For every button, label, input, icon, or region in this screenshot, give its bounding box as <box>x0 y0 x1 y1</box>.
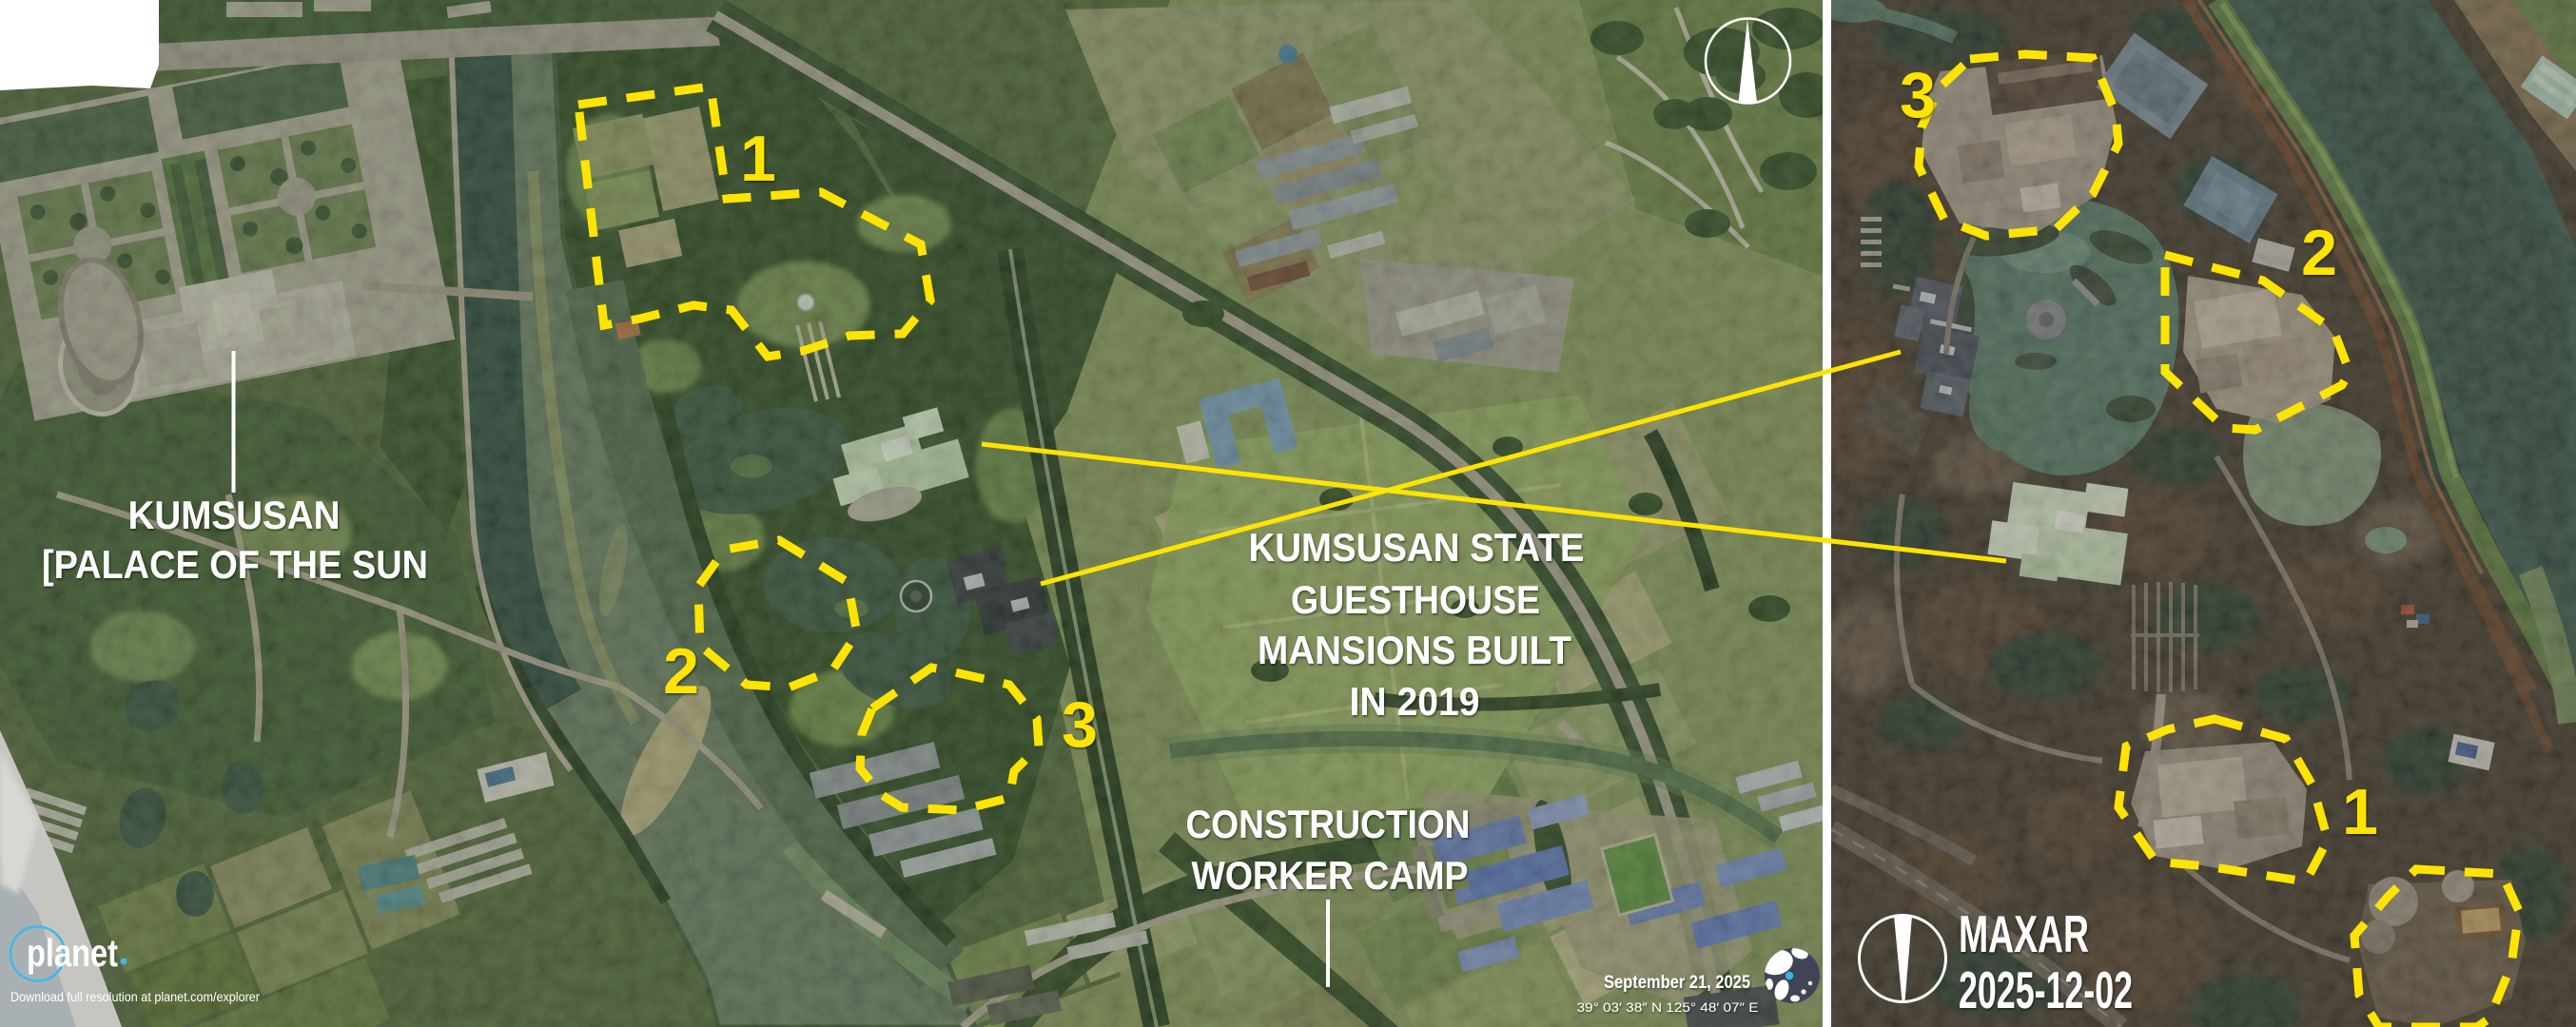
svg-text:KUMSUSAN STATE: KUMSUSAN STATE <box>1249 525 1585 570</box>
svg-text:2025-12-02: 2025-12-02 <box>1959 960 2133 1019</box>
svg-text:3: 3 <box>1900 59 1936 131</box>
svg-text:MAXAR: MAXAR <box>1959 904 2089 963</box>
svg-text:1: 1 <box>2342 776 2378 848</box>
svg-text:September 21, 2025: September 21, 2025 <box>1604 973 1750 993</box>
svg-text:IN 2019: IN 2019 <box>1350 679 1480 724</box>
svg-text:KUMSUSAN: KUMSUSAN <box>128 493 341 537</box>
svg-text:MANSIONS BUILT: MANSIONS BUILT <box>1258 628 1571 672</box>
svg-text:3: 3 <box>1062 688 1098 761</box>
svg-text:CONSTRUCTION: CONSTRUCTION <box>1186 802 1471 846</box>
svg-text:[PALACE OF THE SUN: [PALACE OF THE SUN <box>42 542 428 587</box>
svg-text:planet: planet <box>27 931 118 975</box>
svg-text:2: 2 <box>2301 217 2337 289</box>
svg-text:Download full resolution at pl: Download full resolution at planet.com/e… <box>10 990 260 1004</box>
svg-text:39° 03′ 38″ N 125° 48′ 07″ E: 39° 03′ 38″ N 125° 48′ 07″ E <box>1577 999 1759 1015</box>
svg-text:GUESTHOUSE: GUESTHOUSE <box>1291 577 1540 622</box>
svg-text:2: 2 <box>663 635 699 707</box>
svg-text:1: 1 <box>740 123 776 195</box>
svg-text:WORKER CAMP: WORKER CAMP <box>1192 853 1469 898</box>
